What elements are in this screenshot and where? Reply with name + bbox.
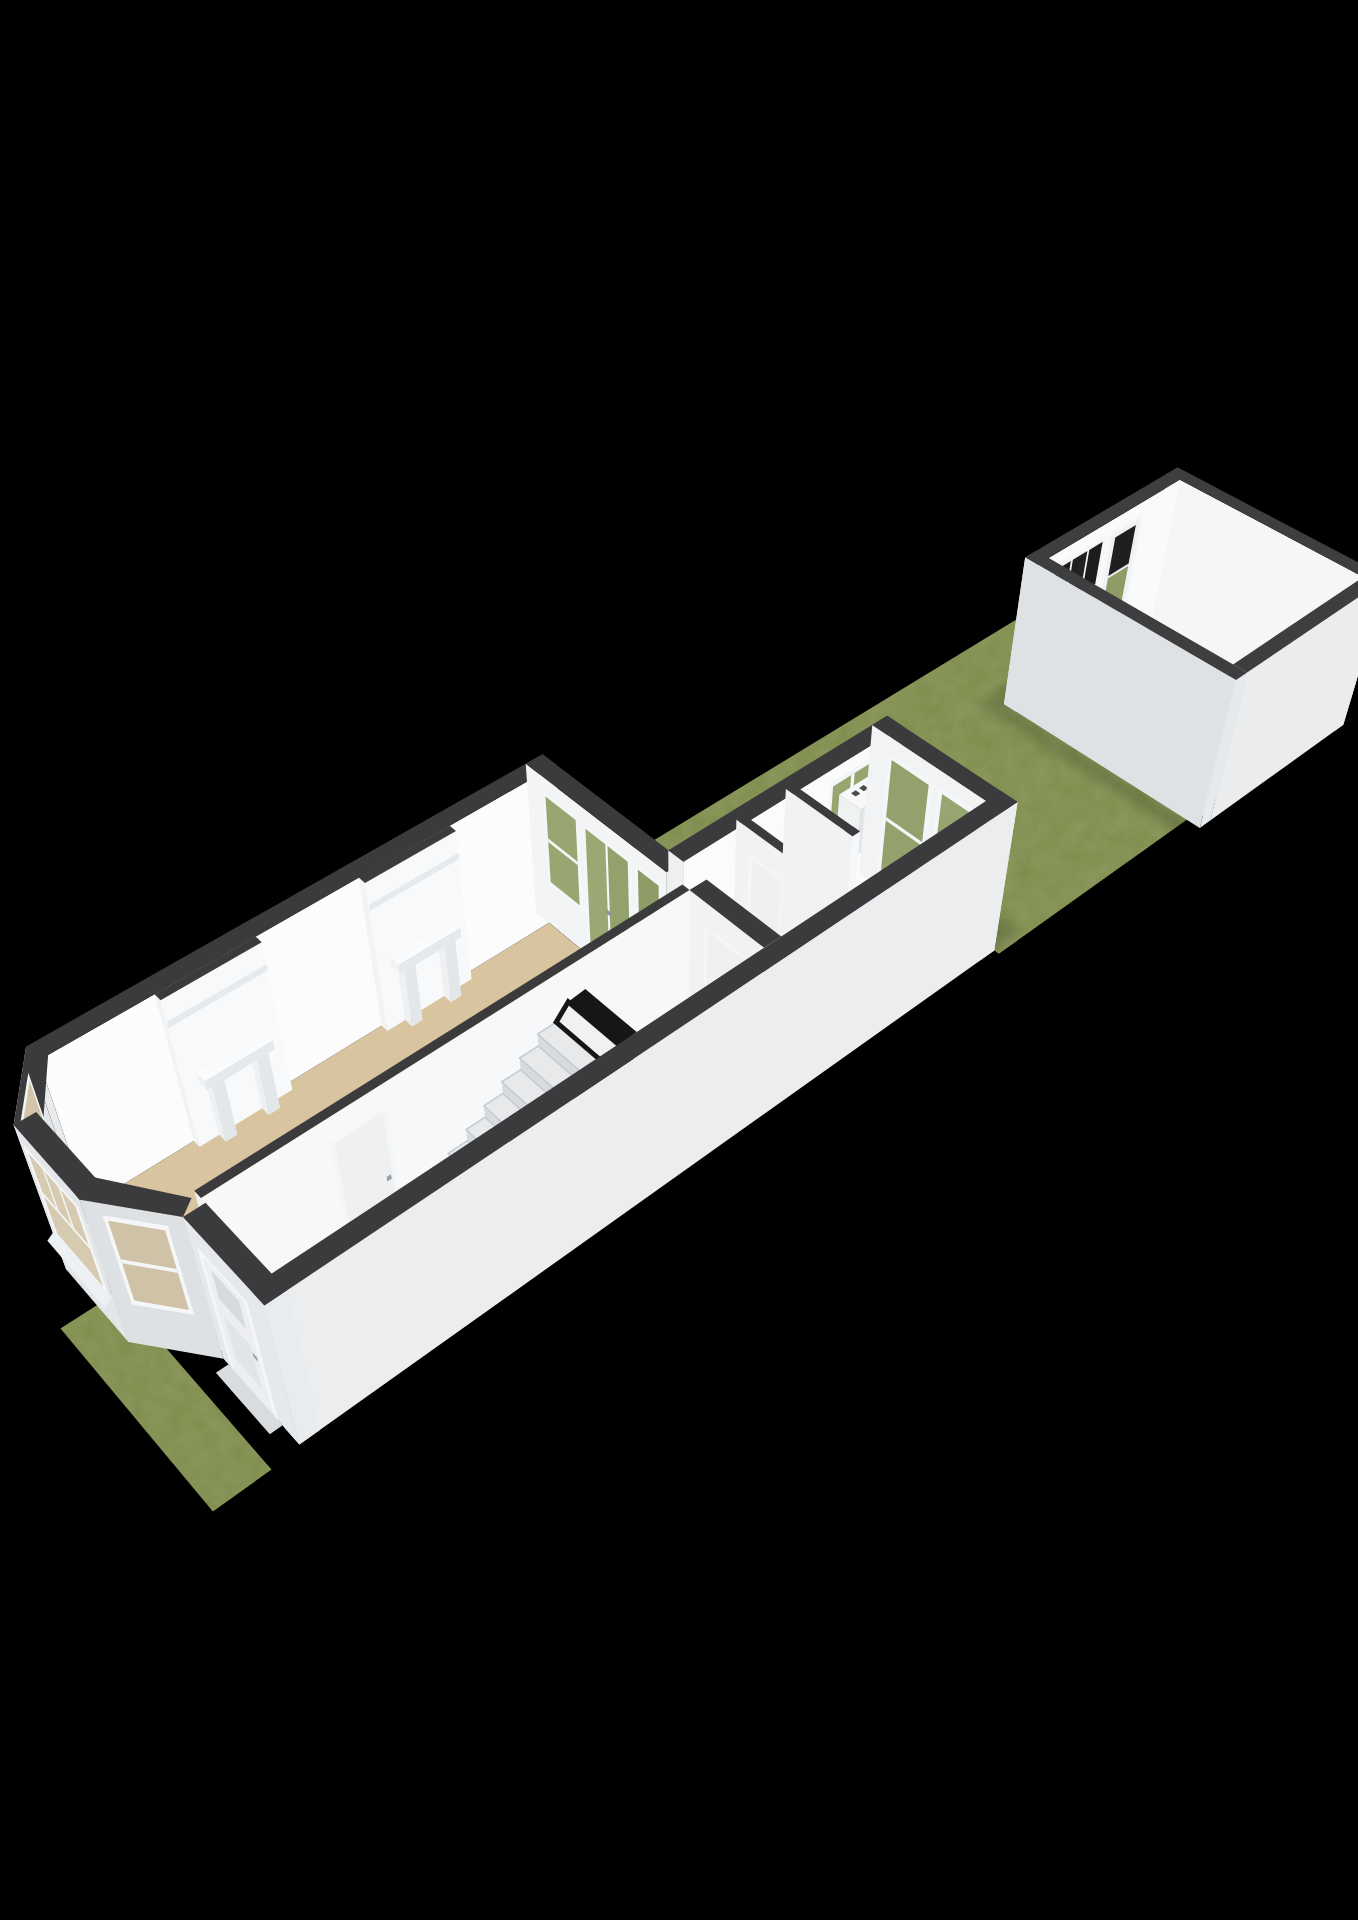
floorplan-3d-render (0, 0, 1358, 1920)
floorplan-svg (0, 0, 1358, 1920)
